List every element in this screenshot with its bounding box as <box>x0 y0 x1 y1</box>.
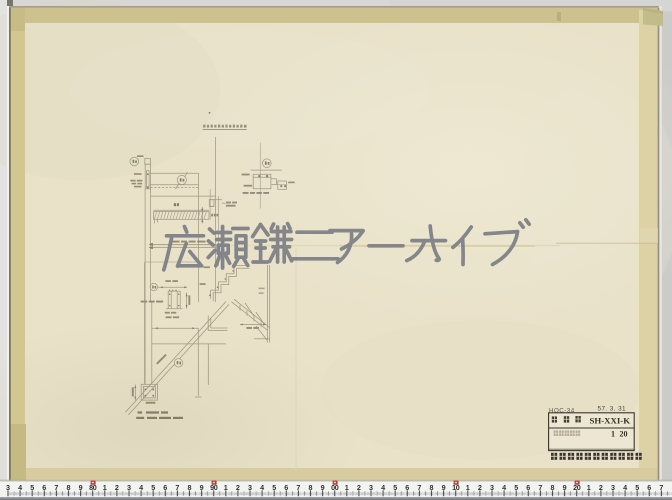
svg-text:1: 1 <box>587 483 591 492</box>
svg-text:9: 9 <box>442 483 446 492</box>
svg-text:2: 2 <box>599 483 603 492</box>
svg-text:1: 1 <box>466 483 470 492</box>
svg-text:57. 3. 31: 57. 3. 31 <box>598 406 627 413</box>
svg-text:8: 8 <box>67 483 71 492</box>
svg-text:6: 6 <box>647 483 651 492</box>
svg-text:8: 8 <box>551 483 555 492</box>
svg-text:7: 7 <box>175 483 179 492</box>
svg-text:9: 9 <box>321 483 325 492</box>
svg-text:6: 6 <box>405 483 409 492</box>
svg-text:4: 4 <box>260 483 264 492</box>
svg-text:8: 8 <box>188 483 192 492</box>
svg-text:4: 4 <box>18 483 22 492</box>
svg-text:2: 2 <box>357 483 361 492</box>
svg-text:8: 8 <box>309 483 313 492</box>
svg-text:3: 3 <box>6 483 10 492</box>
svg-text:3: 3 <box>248 483 252 492</box>
svg-text:4: 4 <box>381 483 385 492</box>
svg-text:6: 6 <box>526 483 530 492</box>
svg-text:5: 5 <box>514 483 518 492</box>
svg-text:7: 7 <box>296 483 300 492</box>
svg-text:1: 1 <box>611 429 615 438</box>
svg-text:SH-XXI-K: SH-XXI-K <box>590 416 631 426</box>
svg-text:8: 8 <box>430 483 434 492</box>
svg-text:3: 3 <box>127 483 131 492</box>
svg-text:6: 6 <box>163 483 167 492</box>
svg-text:3: 3 <box>369 483 373 492</box>
svg-text:5: 5 <box>272 483 276 492</box>
svg-text:4: 4 <box>139 483 143 492</box>
svg-text:4: 4 <box>502 483 506 492</box>
svg-text:2: 2 <box>236 483 240 492</box>
svg-text:2: 2 <box>115 483 119 492</box>
svg-text:2: 2 <box>478 483 482 492</box>
svg-text:9: 9 <box>79 483 83 492</box>
svg-text:7: 7 <box>54 483 58 492</box>
svg-text:7: 7 <box>659 483 663 492</box>
svg-text:1: 1 <box>103 483 107 492</box>
svg-text:4: 4 <box>623 483 627 492</box>
svg-text:20: 20 <box>620 429 628 438</box>
svg-text:9: 9 <box>200 483 204 492</box>
svg-text:9: 9 <box>563 483 567 492</box>
svg-text:3: 3 <box>490 483 494 492</box>
svg-text:7: 7 <box>538 483 542 492</box>
svg-text:5: 5 <box>635 483 639 492</box>
svg-text:7: 7 <box>417 483 421 492</box>
svg-text:5: 5 <box>30 483 34 492</box>
svg-text:6: 6 <box>42 483 46 492</box>
svg-text:1: 1 <box>345 483 349 492</box>
svg-text:5: 5 <box>393 483 397 492</box>
svg-text:1: 1 <box>224 483 228 492</box>
svg-text:3: 3 <box>611 483 615 492</box>
svg-text:5: 5 <box>151 483 155 492</box>
svg-text:6: 6 <box>284 483 288 492</box>
